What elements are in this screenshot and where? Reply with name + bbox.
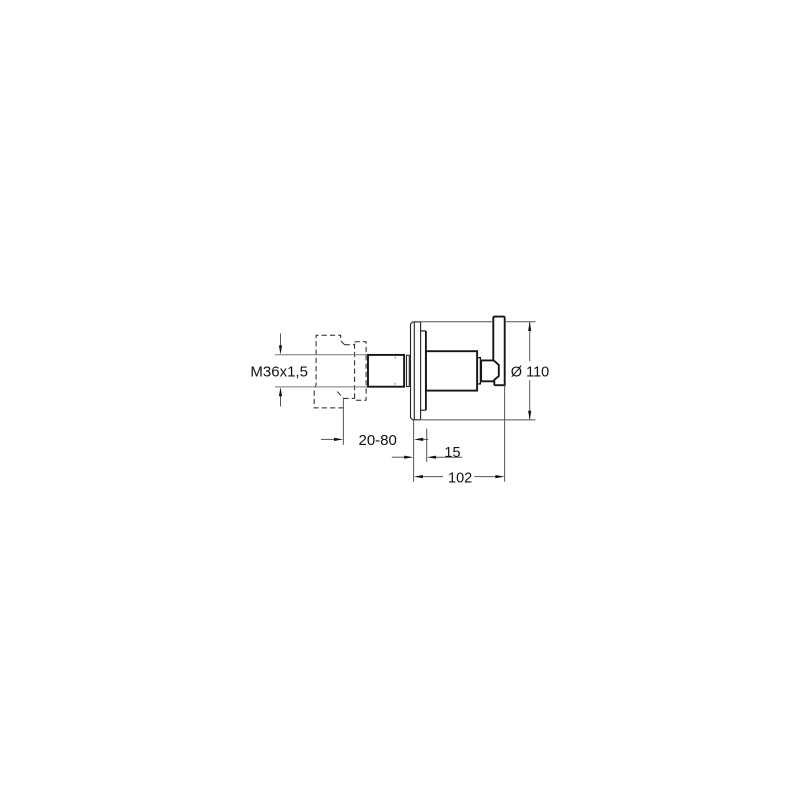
svg-text:102: 102 (448, 471, 472, 487)
svg-text:20-80: 20-80 (359, 432, 397, 449)
svg-text:Ø 110: Ø 110 (511, 365, 549, 381)
svg-text:M36x1,5: M36x1,5 (250, 363, 308, 380)
svg-text:15: 15 (444, 445, 460, 461)
